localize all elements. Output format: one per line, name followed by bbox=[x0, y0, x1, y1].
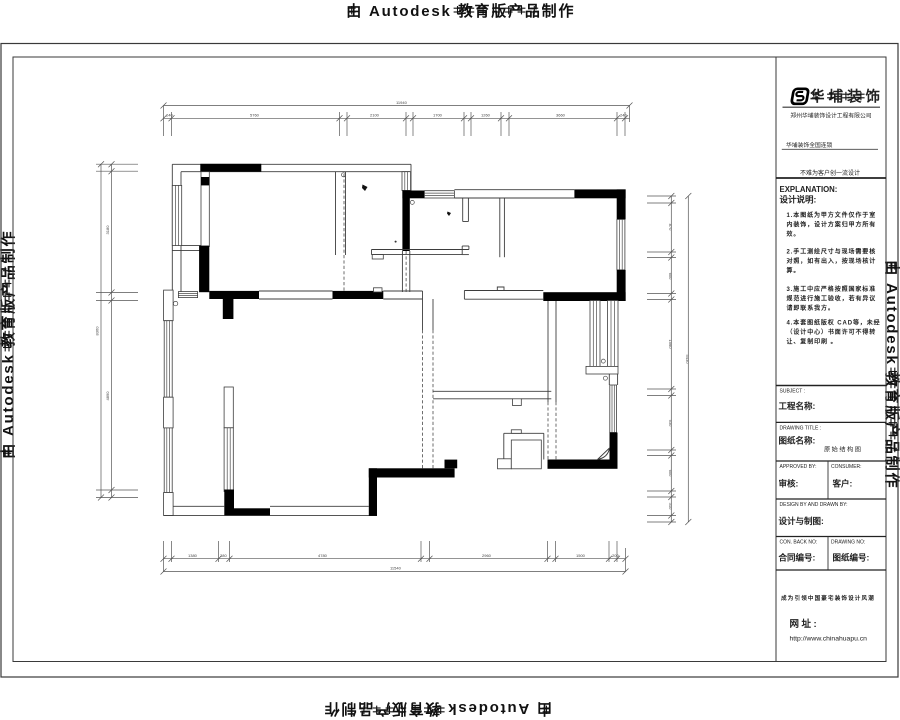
svg-text:CON. BACK NO:: CON. BACK NO: bbox=[780, 540, 818, 546]
svg-text:3.施工中应严格按照国家标准: 3.施工中应严格按照国家标准 bbox=[787, 285, 877, 293]
svg-text:600: 600 bbox=[668, 273, 673, 280]
svg-text:DESIGN BY AND DRAWN BY:: DESIGN BY AND DRAWN BY: bbox=[780, 502, 848, 508]
svg-text:由 Autodesk 教育版产品制作: 由 Autodesk 教育版产品制作 bbox=[323, 700, 552, 718]
svg-text:规范进行施工验收，若有异议: 规范进行施工验收，若有异议 bbox=[787, 295, 877, 303]
svg-text:5760: 5760 bbox=[250, 113, 260, 118]
svg-text:郑州华埔装饰设计工程有限公司: 郑州华埔装饰设计工程有限公司 bbox=[790, 112, 871, 120]
svg-text:1.本图纸为甲方文件仅作于室: 1.本图纸为甲方文件仅作于室 bbox=[787, 211, 877, 219]
svg-text:图纸名称:: 图纸名称: bbox=[779, 436, 816, 446]
svg-text:原始结构图: 原始结构图 bbox=[824, 446, 862, 454]
svg-text:算。: 算。 bbox=[787, 267, 801, 275]
svg-text:280: 280 bbox=[220, 553, 227, 558]
svg-text:工程名称:: 工程名称: bbox=[779, 401, 816, 411]
svg-text:2.手工测绘尺寸与现场需要核: 2.手工测绘尺寸与现场需要核 bbox=[787, 248, 877, 256]
svg-text:http://www.chinahuapu.cn: http://www.chinahuapu.cn bbox=[790, 636, 868, 643]
svg-text:成为引领中国豪宅装饰设计风潮: 成为引领中国豪宅装饰设计风潮 bbox=[781, 594, 875, 602]
svg-text:8360: 8360 bbox=[95, 326, 100, 336]
svg-text:EXPLANATION:: EXPLANATION: bbox=[780, 185, 838, 194]
svg-text:请即联系我方。: 请即联系我方。 bbox=[787, 304, 835, 312]
svg-text:2100: 2100 bbox=[370, 113, 380, 118]
svg-text:3180: 3180 bbox=[105, 225, 110, 235]
svg-text:对照，如有出入，按现场核计: 对照，如有出入，按现场核计 bbox=[787, 257, 877, 265]
svg-text:240: 240 bbox=[166, 113, 173, 118]
svg-text:（设计中心）书面许可不得转: （设计中心）书面许可不得转 bbox=[787, 328, 877, 336]
svg-text:4780: 4780 bbox=[318, 553, 328, 558]
svg-text:DRAWING TITLE :: DRAWING TITLE : bbox=[780, 426, 822, 432]
svg-text:1380: 1380 bbox=[188, 553, 198, 558]
svg-text:1700: 1700 bbox=[433, 113, 443, 118]
svg-text:600: 600 bbox=[668, 470, 673, 477]
svg-text:240: 240 bbox=[620, 113, 627, 118]
svg-text:3660: 3660 bbox=[556, 113, 566, 118]
svg-text:200: 200 bbox=[612, 553, 619, 558]
svg-text:1500: 1500 bbox=[576, 553, 586, 558]
svg-text:不难为客户创一流设计: 不难为客户创一流设计 bbox=[800, 169, 860, 177]
svg-text:870: 870 bbox=[668, 224, 673, 231]
svg-text:内装饰，设计方案归甲方所有: 内装饰，设计方案归甲方所有 bbox=[787, 221, 877, 229]
svg-text:由 Autodesk 教育版产品制作: 由 Autodesk 教育版产品制作 bbox=[346, 2, 575, 20]
svg-text:客户:: 客户: bbox=[832, 479, 853, 489]
svg-text:11940: 11940 bbox=[396, 100, 408, 105]
svg-text:5430: 5430 bbox=[685, 355, 690, 365]
svg-text:合同编号:: 合同编号: bbox=[778, 553, 816, 563]
svg-text:SUBJECT :: SUBJECT : bbox=[780, 389, 805, 395]
svg-text:设计说明:: 设计说明: bbox=[780, 195, 817, 205]
svg-text:审核:: 审核: bbox=[779, 479, 799, 489]
svg-text:1560: 1560 bbox=[668, 340, 673, 350]
svg-text:效。: 效。 bbox=[787, 230, 801, 238]
svg-text:4890: 4890 bbox=[105, 391, 110, 401]
svg-text:华埔装饰全国连锁: 华埔装饰全国连锁 bbox=[786, 141, 833, 149]
svg-text:11540: 11540 bbox=[390, 566, 402, 571]
svg-text:310: 310 bbox=[668, 503, 673, 510]
svg-text:网址:: 网址: bbox=[790, 618, 820, 630]
svg-text:4.本套图纸版权 CAD等，未经: 4.本套图纸版权 CAD等，未经 bbox=[787, 319, 881, 327]
svg-text:CONSUMER:: CONSUMER: bbox=[831, 464, 862, 470]
svg-text:APPROVED BY:: APPROVED BY: bbox=[780, 464, 817, 470]
svg-text:让、复制印刷 。: 让、复制印刷 。 bbox=[787, 338, 838, 346]
svg-text:图纸编号:: 图纸编号: bbox=[833, 553, 870, 563]
svg-text:930: 930 bbox=[668, 420, 673, 427]
svg-text:华埔装饰: 华埔装饰 bbox=[810, 88, 884, 106]
svg-text:1260: 1260 bbox=[481, 113, 491, 118]
svg-text:2960: 2960 bbox=[482, 553, 492, 558]
svg-text:DRAWING NO:: DRAWING NO: bbox=[831, 540, 865, 546]
svg-text:设计与制图:: 设计与制图: bbox=[779, 516, 825, 526]
